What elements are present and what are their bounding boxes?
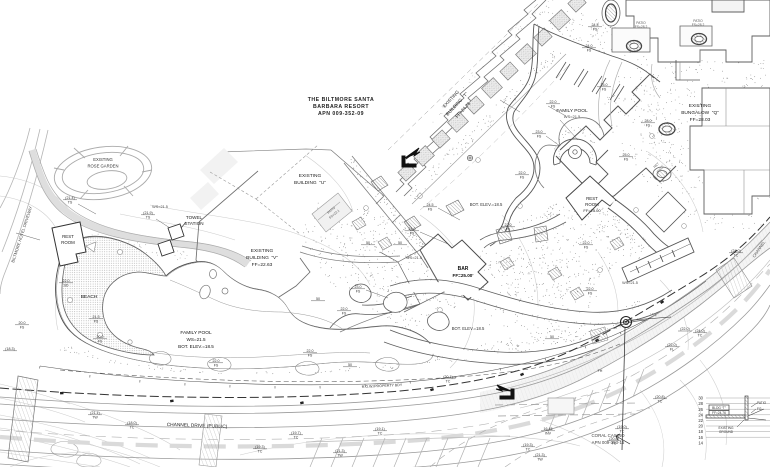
svg-text:FAMILY POOL: FAMILY POOL xyxy=(180,330,212,336)
svg-text:24.0: 24.0 xyxy=(409,227,416,231)
svg-text:FS: FS xyxy=(602,88,607,92)
svg-text:28.0: 28.0 xyxy=(645,119,652,123)
svg-text:TOWEL: TOWEL xyxy=(186,215,203,220)
svg-text:(21.3): (21.3) xyxy=(335,449,344,453)
svg-text:TC: TC xyxy=(658,400,663,404)
svg-text:50: 50 xyxy=(316,297,320,301)
svg-text:22.0: 22.0 xyxy=(307,349,314,353)
svg-text:BAR: BAR xyxy=(458,266,469,272)
svg-text:FS: FS xyxy=(356,290,361,294)
svg-text:TC: TC xyxy=(620,430,625,434)
svg-text:WS=21.5: WS=21.5 xyxy=(152,205,168,209)
svg-text:WS=21.5: WS=21.5 xyxy=(186,337,205,342)
svg-text:(19.0): (19.0) xyxy=(617,425,626,429)
svg-text:FH: FH xyxy=(598,369,603,373)
svg-text:(24.0): (24.0) xyxy=(731,249,740,253)
svg-text:FG: FG xyxy=(757,407,762,411)
svg-text:(21.9): (21.9) xyxy=(143,211,152,215)
svg-text:24.0: 24.0 xyxy=(586,44,593,48)
svg-text:14: 14 xyxy=(698,440,703,445)
svg-text:(19.1): (19.1) xyxy=(375,427,384,431)
svg-text:REST: REST xyxy=(586,196,598,201)
svg-text:FS: FS xyxy=(588,292,593,296)
svg-text:BUNGALOW “Q”: BUNGALOW “Q” xyxy=(681,110,719,116)
svg-text:20.0: 20.0 xyxy=(19,321,26,325)
svg-text:22.0: 22.0 xyxy=(213,359,220,363)
svg-text:TC: TC xyxy=(130,426,135,430)
svg-text:BARBARA RESORT: BARBARA RESORT xyxy=(313,104,369,110)
svg-text:J: J xyxy=(387,289,389,293)
svg-text:22: 22 xyxy=(698,418,703,423)
svg-text:(19.3): (19.3) xyxy=(523,443,532,447)
svg-text:22.0: 22.0 xyxy=(341,307,348,311)
svg-text:22.0: 22.0 xyxy=(550,100,557,104)
svg-text:FS: FS xyxy=(646,124,651,128)
svg-text:22.0: 22.0 xyxy=(587,287,594,291)
svg-text:TW: TW xyxy=(92,416,98,420)
svg-text:50: 50 xyxy=(550,335,554,339)
svg-text:ROSE GARDEN: ROSE GARDEN xyxy=(88,164,119,169)
svg-text:30: 30 xyxy=(698,396,703,401)
svg-text:BEACH: BEACH xyxy=(81,294,98,300)
svg-text:FS: FS xyxy=(624,158,629,162)
svg-text:50: 50 xyxy=(398,241,402,245)
svg-text:(21.4): (21.4) xyxy=(65,196,74,200)
svg-text:28: 28 xyxy=(698,401,703,406)
svg-text:(19.7): (19.7) xyxy=(291,431,300,435)
svg-text:FS=28.2: FS=28.2 xyxy=(635,25,648,29)
svg-text:FS: FS xyxy=(593,28,598,32)
svg-text:24: 24 xyxy=(698,412,703,417)
svg-text:TC: TC xyxy=(294,436,299,440)
svg-text:ROOM: ROOM xyxy=(61,240,75,245)
svg-text:BOT. ELEV.=18.5: BOT. ELEV.=18.5 xyxy=(178,344,214,349)
svg-text:22.0: 22.0 xyxy=(583,241,590,245)
svg-text:WS=21.5: WS=21.5 xyxy=(406,256,422,260)
svg-text:FF=25.00': FF=25.00' xyxy=(453,273,474,278)
svg-text:FS: FS xyxy=(98,340,103,344)
svg-text:FS: FS xyxy=(308,354,313,358)
svg-text:TS: TS xyxy=(146,216,151,220)
svg-text:18: 18 xyxy=(698,429,703,434)
svg-text:24.5: 24.5 xyxy=(427,203,434,207)
svg-text:REST: REST xyxy=(62,234,74,239)
svg-text:EXISTING: EXISTING xyxy=(251,248,274,254)
svg-text:FS: FS xyxy=(94,320,99,324)
svg-text:20: 20 xyxy=(698,424,703,429)
svg-text:SD: SD xyxy=(64,284,69,288)
svg-text:FS: FS xyxy=(520,176,525,180)
svg-text:(20.1): (20.1) xyxy=(443,375,452,379)
svg-text:FS: FS xyxy=(20,326,25,330)
svg-text:50: 50 xyxy=(348,363,352,367)
svg-text:BOT. ELEV.=18.5: BOT. ELEV.=18.5 xyxy=(470,202,503,207)
svg-text:21.3: 21.3 xyxy=(93,315,100,319)
svg-text:WS=21.5: WS=21.5 xyxy=(622,281,638,285)
svg-text:25.0: 25.0 xyxy=(601,83,608,87)
svg-text:TC: TC xyxy=(258,450,263,454)
svg-text:24.5: 24.5 xyxy=(592,23,599,27)
svg-text:EXISTING: EXISTING xyxy=(93,157,113,162)
svg-text:23.0: 23.0 xyxy=(355,285,362,289)
svg-text:APN 009-352-09: APN 009-352-09 xyxy=(318,111,364,117)
svg-text:FS: FS xyxy=(584,246,589,250)
svg-text:22.0: 22.0 xyxy=(63,279,70,283)
svg-text:TW: TW xyxy=(337,454,343,458)
svg-text:GROUND: GROUND xyxy=(719,430,734,434)
svg-text:FS: FS xyxy=(410,232,415,236)
svg-text:BLDG “T”: BLDG “T” xyxy=(712,406,726,410)
svg-text:FF=22.63: FF=22.63 xyxy=(252,262,273,268)
svg-text:(20.8): (20.8) xyxy=(609,437,618,441)
svg-text:(20.8): (20.8) xyxy=(655,395,664,399)
svg-text:THE BILTMORE SANTA: THE BILTMORE SANTA xyxy=(308,97,374,103)
svg-text:BOT. ELEV.=18.5: BOT. ELEV.=18.5 xyxy=(452,326,485,331)
svg-text:TC: TC xyxy=(378,432,383,436)
svg-text:(22.0): (22.0) xyxy=(680,327,689,331)
svg-text:INV: INV xyxy=(545,432,552,436)
svg-text:FF=25.00: FF=25.00 xyxy=(583,208,601,213)
svg-text:TC: TC xyxy=(612,442,617,446)
svg-text:50: 50 xyxy=(366,241,370,245)
svg-text:23.0: 23.0 xyxy=(536,130,543,134)
svg-text:26: 26 xyxy=(698,407,703,412)
svg-text:(21.1): (21.1) xyxy=(90,411,99,415)
svg-text:BUILDING “V”: BUILDING “V” xyxy=(246,255,278,261)
svg-text:TW: TW xyxy=(537,458,543,462)
svg-text:TC: TC xyxy=(446,380,451,384)
svg-text:STATION: STATION xyxy=(184,221,203,226)
svg-text:TC: TC xyxy=(698,334,703,338)
svg-text:TC: TC xyxy=(734,254,739,258)
svg-text:BUILDING “U”: BUILDING “U” xyxy=(294,180,326,186)
svg-text:(18.0): (18.0) xyxy=(127,421,136,425)
svg-text:FS: FS xyxy=(428,208,433,212)
svg-text:(21.3): (21.3) xyxy=(535,453,544,457)
svg-text:FF=28.03: FF=28.03 xyxy=(690,117,711,123)
svg-text:FL: FL xyxy=(670,348,674,352)
svg-text:(19.3): (19.3) xyxy=(255,445,264,449)
svg-text:22.0: 22.0 xyxy=(519,171,526,175)
svg-text:FS: FS xyxy=(214,364,219,368)
svg-text:16: 16 xyxy=(698,435,703,440)
svg-text:EXISTING: EXISTING xyxy=(299,173,322,179)
svg-text:16.45: 16.45 xyxy=(544,427,553,431)
svg-text:(24.0): (24.0) xyxy=(695,329,704,333)
svg-text:FS: FS xyxy=(506,228,511,232)
svg-text:CORAL CASINO: CORAL CASINO xyxy=(591,433,625,438)
svg-text:EXISTING: EXISTING xyxy=(689,103,712,109)
svg-text:FS: FS xyxy=(587,49,592,53)
svg-text:FS: FS xyxy=(342,312,347,316)
svg-text:ROOM: ROOM xyxy=(585,202,599,207)
svg-text:TS: TS xyxy=(68,201,73,205)
svg-text:PATIO: PATIO xyxy=(757,401,767,405)
svg-text:TC: TC xyxy=(526,448,531,452)
svg-text:FS: FS xyxy=(537,135,542,139)
svg-text:22.0: 22.0 xyxy=(505,223,512,227)
svg-text:FS=28.2: FS=28.2 xyxy=(692,23,705,27)
svg-text:20.0: 20.0 xyxy=(97,335,104,339)
svg-text:(18.3): (18.3) xyxy=(5,347,14,351)
svg-text:25.0: 25.0 xyxy=(623,153,630,157)
svg-text:(22.0): (22.0) xyxy=(667,343,676,347)
svg-text:FF=24.76: FF=24.76 xyxy=(712,411,726,415)
